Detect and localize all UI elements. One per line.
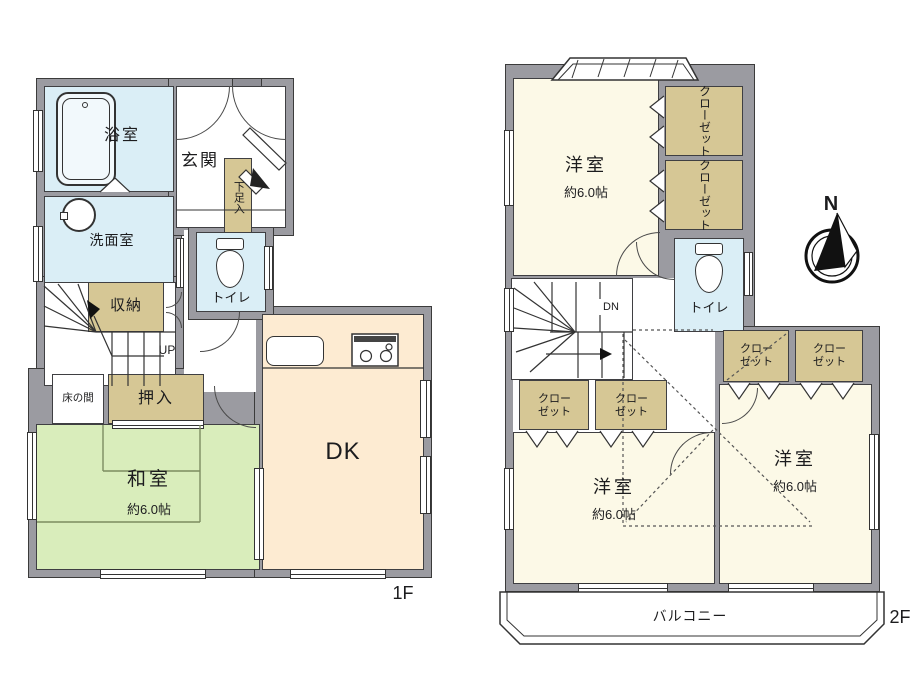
compass-icon	[806, 213, 858, 282]
bath-label: 浴室	[92, 124, 152, 148]
floor-plan: 浴室 玄関 下足入 洗面室 トイレ 収納 UP 床の間 押入 和室 約6.0帖 …	[0, 0, 920, 689]
washing-machine-tap	[60, 212, 68, 220]
entrance-label: 玄関	[168, 148, 232, 174]
closet-b-label: クローゼット	[676, 174, 732, 216]
sliding-door-japanese-room	[254, 468, 264, 560]
washroom-label: 洗面室	[79, 229, 145, 251]
closet-a-label: クローゼット	[676, 100, 732, 142]
western-room-southwest-size-label: 約6.0帖	[569, 506, 659, 524]
toilet-1f-tank-icon	[216, 238, 244, 250]
balcony-label: バルコニー	[630, 606, 750, 626]
window-japanese-room-south	[100, 569, 206, 579]
window-2f-stairs-west	[504, 288, 514, 332]
window-japanese-room-west	[27, 432, 37, 520]
window-dk-east-1	[420, 380, 431, 438]
window-2f-sw-room-west	[504, 468, 514, 530]
stairs-dn-label: DN	[597, 299, 625, 315]
window-washroom	[33, 226, 43, 282]
dk-label: DK	[310, 436, 376, 468]
toilet-2f-label: トイレ	[682, 298, 736, 318]
storage-1f-label: 収納	[92, 294, 160, 318]
window-2f-toilet-east	[744, 252, 753, 296]
closet-c-label: クローゼット	[535, 384, 574, 428]
bathtub-drain	[82, 102, 88, 108]
western-room-southeast-size-label: 約6.0帖	[750, 478, 840, 496]
kitchen-sink-icon	[266, 336, 324, 366]
sliding-door-washroom	[176, 238, 184, 288]
toilet-1f-label: トイレ	[204, 288, 258, 308]
japanese-room-label: 和室	[108, 466, 190, 494]
tokonoma-label: 床の間	[54, 389, 102, 407]
floor2-label: 2F	[884, 606, 916, 628]
window-dk-east-2	[420, 456, 431, 514]
closet-e-label: クローゼット	[737, 334, 776, 378]
western-room-north-size-label: 約6.0帖	[544, 184, 628, 202]
washing-machine-icon	[62, 198, 96, 232]
stairs-up-label: UP	[150, 342, 184, 360]
window-dk-south	[290, 569, 386, 579]
japanese-room-size-label: 約6.0帖	[103, 500, 195, 520]
floor1-label: 1F	[386, 582, 420, 604]
toilet-2f-tank-icon	[695, 243, 723, 255]
window-2f-se-room-east	[869, 434, 879, 530]
closet-f-label: クローゼット	[810, 334, 849, 378]
shoe-cabinet-label: 下足入	[227, 166, 249, 228]
western-room-north-label: 洋室	[550, 152, 622, 178]
japanese-room	[36, 424, 260, 570]
window-2f-sw-room-south	[578, 583, 668, 593]
stairs-2f-area	[511, 278, 633, 380]
futon-closet-label: 押入	[118, 386, 194, 412]
window-bath	[33, 110, 43, 172]
sliding-door-futon-closet	[112, 420, 204, 429]
western-room-southwest-label: 洋室	[578, 474, 650, 500]
window-toilet-1f	[264, 246, 273, 290]
compass-north-label: N	[818, 192, 844, 216]
western-room-southeast-label: 洋室	[759, 446, 831, 472]
window-2f-north-room-west	[504, 130, 514, 206]
window-2f-se-room-south	[728, 583, 814, 593]
closet-d-label: クローゼット	[612, 384, 651, 428]
